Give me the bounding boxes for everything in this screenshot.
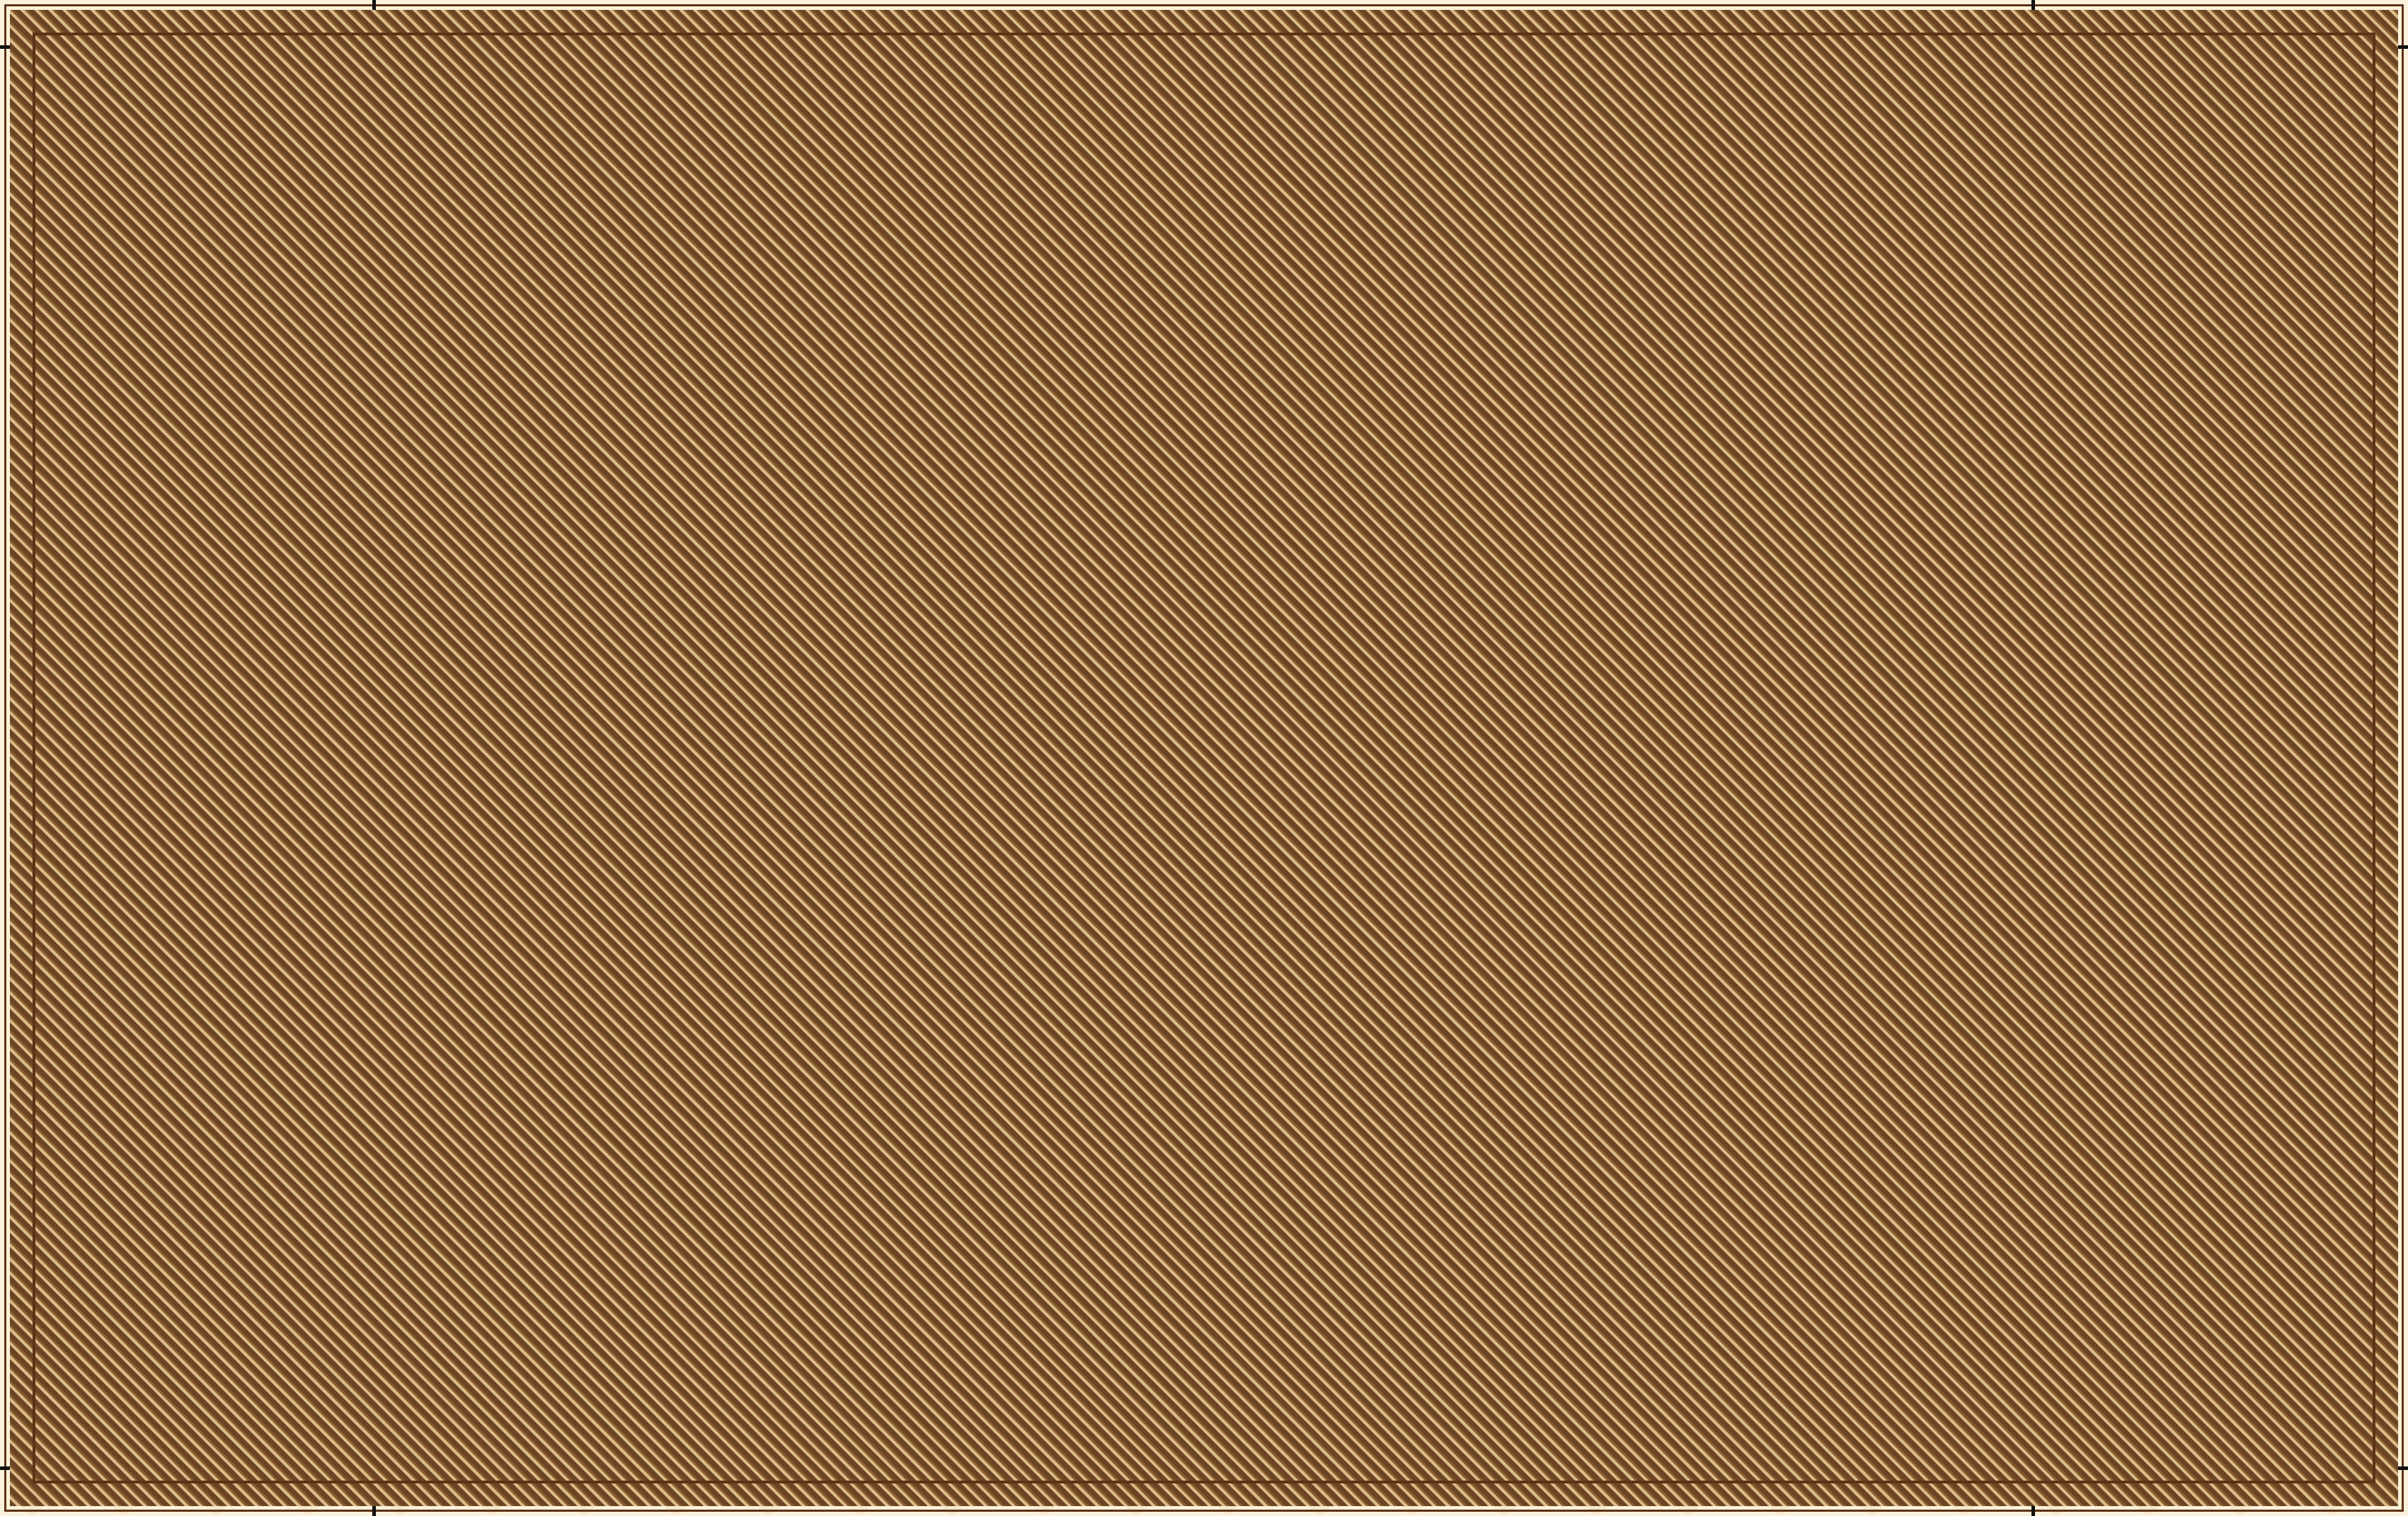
- crop-mark: [372, 0, 376, 10]
- crop-mark: [2398, 45, 2408, 49]
- crop-mark: [2398, 1466, 2408, 1470]
- crop-mark: [0, 45, 10, 49]
- crop-mark: [2031, 0, 2035, 10]
- frame-inner-line: [33, 33, 2375, 1483]
- crop-mark: [372, 1506, 376, 1516]
- crop-mark: [2031, 1506, 2035, 1516]
- tourist-map-poster: i P: [0, 0, 2408, 1516]
- crop-mark: [0, 1466, 10, 1470]
